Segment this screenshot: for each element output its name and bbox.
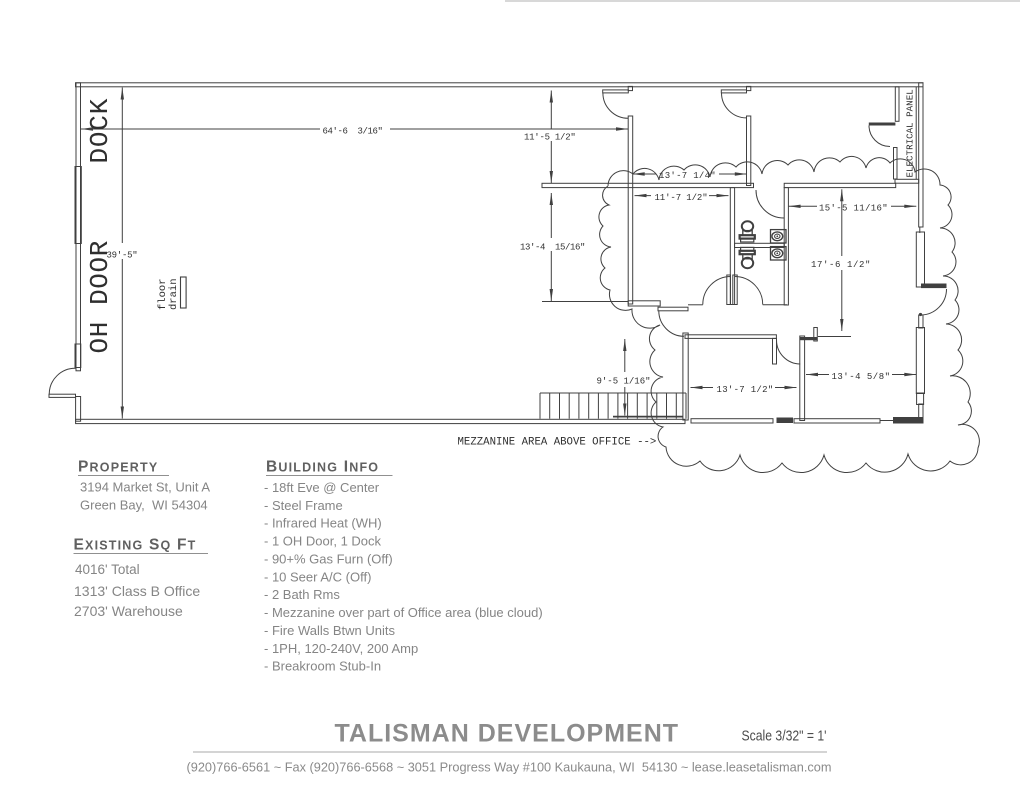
svg-text:1313' Class B Office: 1313' Class B Office xyxy=(74,583,200,599)
svg-text:- Infrared Heat (WH): - Infrared Heat (WH) xyxy=(264,516,382,531)
svg-text:13'-7 1/2": 13'-7 1/2" xyxy=(717,385,774,395)
svg-text:- Breakroom Stub-In: - Breakroom Stub-In xyxy=(264,659,381,674)
svg-text:- Mezzanine over part of Offic: - Mezzanine over part of Office area (bl… xyxy=(264,605,543,620)
svg-text:3194 Market St, Unit A: 3194 Market St, Unit A xyxy=(80,480,210,495)
svg-text:- Fire Walls Btwn Units: - Fire Walls Btwn Units xyxy=(264,623,395,638)
svg-text:11'-7 1/2": 11'-7 1/2" xyxy=(655,193,708,203)
svg-text:2703' Warehouse: 2703' Warehouse xyxy=(74,603,183,619)
svg-text:TALISMAN DEVELOPMENT: TALISMAN DEVELOPMENT xyxy=(335,720,680,748)
svg-text:15'-5 11/16": 15'-5 11/16" xyxy=(819,204,888,214)
svg-text:ELECTRICAL PANEL: ELECTRICAL PANEL xyxy=(905,89,916,177)
svg-text:- 90+% Gas Furn (Off): - 90+% Gas Furn (Off) xyxy=(264,551,393,566)
svg-text:- 2 Bath Rms: - 2 Bath Rms xyxy=(264,587,340,602)
svg-text:Green Bay, WI 54304: Green Bay, WI 54304 xyxy=(80,498,208,513)
svg-text:13'-4 15/16": 13'-4 15/16" xyxy=(520,243,585,253)
svg-text:EXISTING SQ FT: EXISTING SQ FT xyxy=(74,537,197,554)
svg-text:(920)766-6561 ~ Fax (920)766-6: (920)766-6561 ~ Fax (920)766-6568 ~ 3051… xyxy=(187,760,832,775)
svg-text:64'-6 3/16": 64'-6 3/16" xyxy=(323,126,383,136)
svg-text:9'-5 1/16": 9'-5 1/16" xyxy=(597,377,651,387)
svg-text:11'-5 1/2": 11'-5 1/2" xyxy=(524,133,576,143)
svg-text:- 18ft Eve @ Center: - 18ft Eve @ Center xyxy=(264,480,380,495)
svg-text:PROPERTY: PROPERTY xyxy=(78,459,158,476)
svg-text:drain: drain xyxy=(168,278,180,310)
svg-text:BUILDING INFO: BUILDING INFO xyxy=(266,459,379,476)
svg-text:DOCK: DOCK xyxy=(85,98,115,164)
svg-text:- Steel Frame: - Steel Frame xyxy=(264,498,343,513)
svg-text:13'-7 1/4": 13'-7 1/4" xyxy=(659,171,716,181)
svg-text:MEZZANINE AREA ABOVE OFFICE --: MEZZANINE AREA ABOVE OFFICE --> xyxy=(458,436,657,448)
svg-text:17'-6 1/2": 17'-6 1/2" xyxy=(811,260,871,270)
svg-text:4016' Total: 4016' Total xyxy=(75,562,140,577)
svg-text:OH DOOR: OH DOOR xyxy=(85,240,115,353)
svg-text:- 1 OH Door, 1 Dock: - 1 OH Door, 1 Dock xyxy=(264,534,382,549)
svg-text:- 10 Seer A/C (Off): - 10 Seer A/C (Off) xyxy=(264,569,371,584)
svg-text:- 1PH, 120-240V, 200 Amp: - 1PH, 120-240V, 200 Amp xyxy=(264,641,418,656)
svg-text:13'-4 5/8": 13'-4 5/8" xyxy=(832,372,891,382)
svg-text:Scale 3/32" = 1': Scale 3/32" = 1' xyxy=(742,728,827,745)
